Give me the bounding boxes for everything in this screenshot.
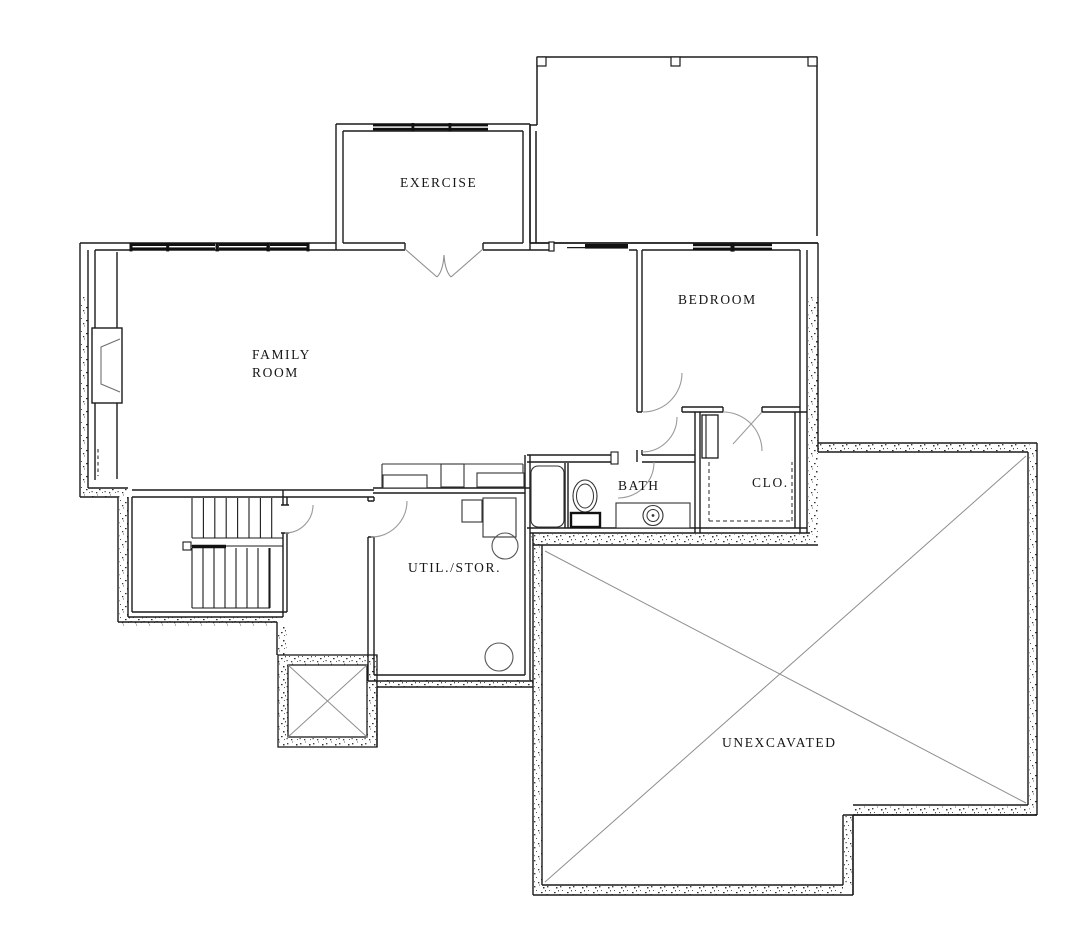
deck-post-left bbox=[537, 57, 546, 66]
bath-label: BATH bbox=[618, 478, 660, 493]
deck-post-middle bbox=[671, 57, 680, 66]
bedroom-door-arc bbox=[643, 373, 682, 412]
door-jamb bbox=[611, 452, 618, 464]
hall bbox=[642, 417, 677, 452]
stipple-unexc-east bbox=[1029, 444, 1037, 815]
stair-door-arc bbox=[285, 505, 313, 533]
hall-door-arc bbox=[642, 417, 677, 452]
bedroom-label: BEDROOM bbox=[678, 292, 757, 307]
stipple-unexc-south bbox=[542, 886, 843, 895]
unexcavated-label: UNEXCAVATED bbox=[722, 735, 837, 750]
closet-door-leaf bbox=[733, 412, 762, 444]
toilet-icon bbox=[571, 480, 600, 527]
stair-walls bbox=[128, 490, 374, 617]
util-stor-room: UTIL./STOR. bbox=[368, 455, 533, 681]
stipple-west-step bbox=[81, 488, 127, 497]
stipple-bath-south bbox=[531, 534, 818, 544]
floor-plan-drawing: EXERCISE FAMILY ROOM bbox=[0, 0, 1080, 940]
floor-plan-page: EXERCISE FAMILY ROOM bbox=[0, 0, 1080, 940]
bedroom: BEDROOM bbox=[637, 243, 818, 533]
stair-handrail bbox=[183, 542, 283, 550]
vanity-sink-icon bbox=[616, 503, 690, 528]
closet-label: CLO. bbox=[752, 475, 789, 490]
stipple-west-wall bbox=[81, 297, 88, 488]
stipple-east-wall bbox=[808, 297, 818, 533]
deck-post-right bbox=[808, 57, 817, 66]
closet-shelf-dashed bbox=[709, 462, 792, 521]
stair-treads-upper bbox=[192, 498, 283, 538]
exercise-room: EXERCISE bbox=[336, 123, 530, 277]
stipple-well-step bbox=[277, 626, 287, 656]
stipple-unexc-north bbox=[818, 444, 1028, 452]
family-room-walls bbox=[88, 243, 637, 617]
french-doors-icon bbox=[405, 249, 483, 277]
window-well bbox=[278, 655, 377, 747]
bathtub-icon bbox=[531, 466, 564, 527]
water-heater-icon-2 bbox=[485, 643, 513, 671]
family-room-label-line2: ROOM bbox=[252, 365, 299, 380]
closet: CLO. bbox=[695, 412, 795, 533]
deck-outline bbox=[530, 57, 817, 243]
exercise-windows bbox=[373, 123, 488, 132]
util-door-arc bbox=[371, 501, 407, 537]
stairs bbox=[128, 490, 374, 617]
stair-treads-lower bbox=[192, 548, 270, 608]
equipment-box-small bbox=[462, 500, 482, 522]
util-stor-label: UTIL./STOR. bbox=[408, 560, 501, 575]
exercise-label: EXERCISE bbox=[400, 175, 477, 190]
family-room-label-line1: FAMILY bbox=[252, 347, 311, 362]
newel-post bbox=[183, 542, 191, 550]
built-in-cabinets bbox=[382, 464, 524, 488]
stipple-unexc-west bbox=[534, 534, 542, 894]
family-room: FAMILY ROOM bbox=[88, 242, 637, 617]
duct-chase bbox=[702, 415, 718, 458]
fireplace bbox=[92, 328, 122, 403]
deck-patio bbox=[530, 57, 817, 243]
stipple-notch-horizontal bbox=[854, 806, 1028, 815]
bath-walls bbox=[527, 450, 818, 545]
stipple-notch-vertical bbox=[844, 816, 853, 885]
bath: BATH bbox=[527, 450, 818, 545]
exterior-outline bbox=[80, 243, 1037, 895]
bedroom-walls bbox=[637, 243, 818, 533]
stipple-stair-west bbox=[119, 497, 128, 617]
furnace-box bbox=[483, 498, 516, 537]
